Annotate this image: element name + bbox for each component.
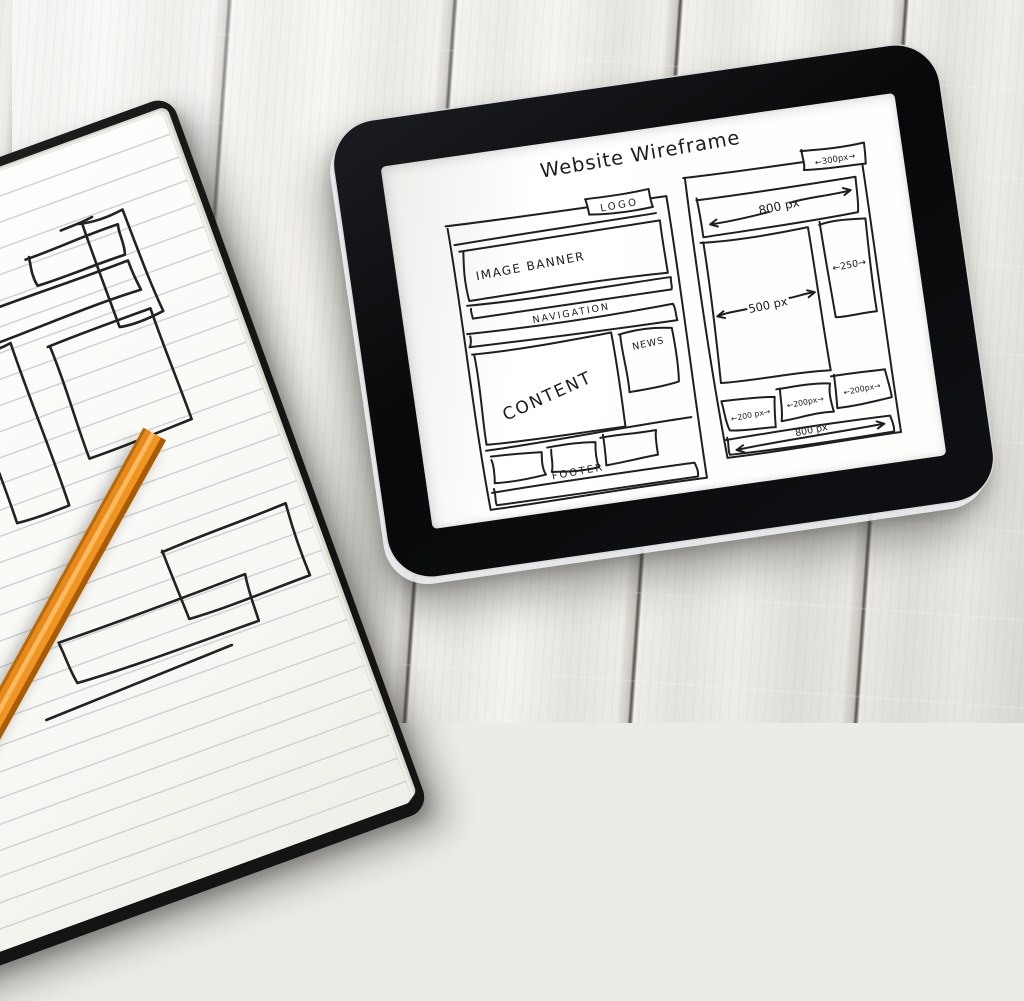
news-box: [618, 325, 680, 393]
notebook-sketch-wide-box: [161, 503, 312, 621]
thumb-box-1: [491, 449, 546, 484]
main-arrow-left: [717, 308, 748, 319]
notebook-sketch-medium-box: [47, 308, 192, 459]
news-label: NEWS: [631, 335, 665, 353]
banner-width-label: 800 px: [757, 195, 800, 217]
content-label: CONTENT: [500, 368, 596, 426]
content-divider-line: [486, 417, 692, 451]
left-header-line: [454, 213, 656, 245]
tablet-screen: Website Wireframe LOGO IMAGE BANNER NAVI…: [381, 93, 947, 529]
image-banner-label: IMAGE BANNER: [475, 249, 587, 283]
notebook-sketch-banner-box: [25, 224, 129, 287]
left-page: LOGO IMAGE BANNER NAVIGATION CONTENT NEW…: [444, 186, 707, 510]
notebook-sketch-strip: [0, 259, 141, 344]
main-arrow-right: [789, 289, 816, 300]
sidebar-width-label: ←250→: [832, 257, 868, 274]
wireframe-sketch: Website Wireframe LOGO IMAGE BANNER NAVI…: [381, 93, 947, 529]
notebook-sketch-bottom-band: [58, 574, 261, 688]
main-width-label: 500 px: [747, 294, 789, 316]
right-page: ←300px→ 800 px 500 px ←250→ ←200 px→ ←20…: [682, 141, 906, 459]
thumb-box-3: [600, 427, 660, 465]
tablet: Website Wireframe LOGO IMAGE BANNER NAVI…: [328, 40, 998, 582]
